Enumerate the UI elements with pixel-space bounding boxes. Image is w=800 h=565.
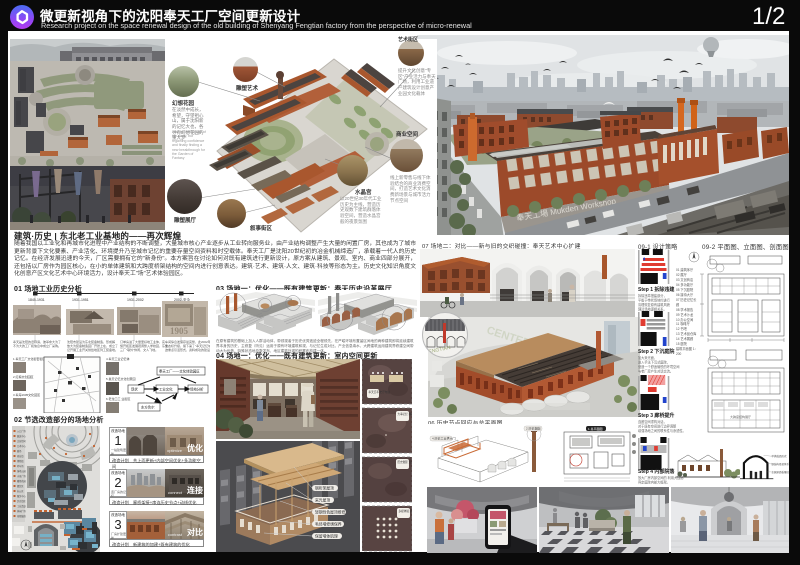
svg-text:历史图影 流金岁月: 历史图影 流金岁月 <box>398 460 413 464</box>
svg-text:加大采光面，: 加大采光面， <box>638 355 657 360</box>
svg-text:Step 2 下沉庭院: Step 2 下沉庭院 <box>638 348 674 355</box>
svg-text:对于既有空间进行边界调整: 对于既有空间进行边界调整 <box>638 424 677 429</box>
svg-text:Step 4 内部院落: Step 4 内部院落 <box>638 468 675 475</box>
svg-text:记开展工业开关供给地区列工装备地。: 记开展工业开关供给地区列工装备地。 <box>67 347 118 352</box>
svg-text:与老厂房产生对话交流。: 与老厂房产生对话交流。 <box>638 369 673 374</box>
svg-text:1 总平面图: 1 总平面图 <box>588 426 603 431</box>
svg-text:东方鲁尔: 东方鲁尔 <box>141 405 155 410</box>
svg-text:进入手法下沉式庭院，: 进入手法下沉式庭院， <box>638 360 670 365</box>
svg-text:轻钢性色屋顶维修: 轻钢性色屋顶维修 <box>315 510 346 515</box>
svg-text:Step 3 廊桥提升: Step 3 廊桥提升 <box>638 412 674 419</box>
svg-text:工业文化: 工业文化 <box>159 387 173 392</box>
svg-text:兴盛时期: 兴盛时期 <box>74 291 87 292</box>
svg-text:三厂"联外"休闲、文人飞地。: 三厂"联外"休闲、文人飞地。 <box>120 347 158 352</box>
svg-text:奉天工厂——文化体验园区: 奉天工厂——文化体验园区 <box>159 369 200 374</box>
svg-text:4 历史工业拱大门: 4 历史工业拱大门 <box>432 436 456 441</box>
svg-text:6 老龙口工 业街区: 6 老龙口工 业街区 <box>106 396 130 401</box>
svg-text:理清场地逻辑关系。: 理清场地逻辑关系。 <box>638 307 667 312</box>
svg-text:拆除违章搭建部分，: 拆除违章搭建部分， <box>638 293 667 298</box>
svg-text:营造一个舒适愉悦的环境空间: 营造一个舒适愉悦的环境空间 <box>638 364 679 369</box>
svg-text:3 奉海1905文化园区: 3 奉海1905文化园区 <box>13 392 40 397</box>
svg-text:4 奉天工业记忆体: 4 奉天工业记忆体 <box>106 356 130 361</box>
svg-text:采光屋顶: 采光屋顶 <box>315 498 330 503</box>
svg-text:1845-1931: 1845-1931 <box>28 298 45 302</box>
svg-text:至今时期: 至今时期 <box>176 291 189 292</box>
svg-text:5 奥天记忆文化创意园: 5 奥天记忆文化创意园 <box>106 376 136 381</box>
svg-text:毛坯墙修缮保养: 毛坯墙修缮保养 <box>315 522 342 527</box>
svg-text:场地分析: 场地分析 <box>190 387 204 392</box>
svg-text:大事记忆 撑起布厅: 大事记忆 撑起布厅 <box>398 412 413 416</box>
svg-text:金属屋面板覆层: 金属屋面板覆层 <box>771 470 789 474</box>
svg-text:保留墙体肌理: 保留墙体肌理 <box>315 534 338 539</box>
svg-text:增强场地之间的联系性与渗透性。: 增强场地之间的联系性与渗透性。 <box>638 428 686 433</box>
svg-text:1 奉天工厂文化街套街区: 1 奉天工厂文化街套街区 <box>13 356 46 361</box>
svg-text:连廊空间重构对话，: 连廊空间重构对话， <box>638 419 667 424</box>
svg-text:不为大的工厂和信息中成立厂采购。: 不为大的工厂和信息中成立厂采购。 <box>13 343 61 348</box>
svg-text:变革时期: 变革时期 <box>129 291 142 292</box>
svg-text:清理恢复原有建筑风貌: 清理恢复原有建筑风貌 <box>638 302 671 307</box>
svg-text:钢桁架屋顶: 钢桁架屋顶 <box>315 486 334 491</box>
svg-text:1905: 1905 <box>170 326 189 336</box>
svg-text:2 历史烟囱: 2 历史烟囱 <box>526 426 541 431</box>
svg-text:大跨度结构展厅: 大跨度结构展厅 <box>730 414 751 419</box>
svg-text:2 红梅文创园区: 2 红梅文创园区 <box>13 374 34 379</box>
svg-text:现状: 现状 <box>131 387 138 392</box>
svg-text:平衡于带状场地约进行: 平衡于带状场地约进行 <box>638 298 671 303</box>
svg-text:界定庭院内部大框架。: 界定庭院内部大框架。 <box>638 480 670 485</box>
svg-text:多媒体展 示空间: 多媒体展 示空间 <box>399 509 413 513</box>
svg-text:1931-1951: 1931-1951 <box>72 298 89 302</box>
svg-text:迹重点引活形式，资料成功的建设不从之后: 迹重点引活形式，资料成功的建设不从之后 <box>165 347 210 352</box>
svg-text:单拱截面形式: 单拱截面形式 <box>771 454 787 458</box>
svg-text:1931-2002: 1931-2002 <box>127 298 144 302</box>
svg-text:奉天时期: 奉天时期 <box>30 291 43 292</box>
svg-text:奉天沿革 史厅布展: 奉天沿革 史厅布展 <box>369 390 391 394</box>
svg-text:钢结构骨架体系: 钢结构骨架体系 <box>771 462 789 466</box>
svg-text:Step 1 拆除违建: Step 1 拆除违建 <box>638 286 675 293</box>
